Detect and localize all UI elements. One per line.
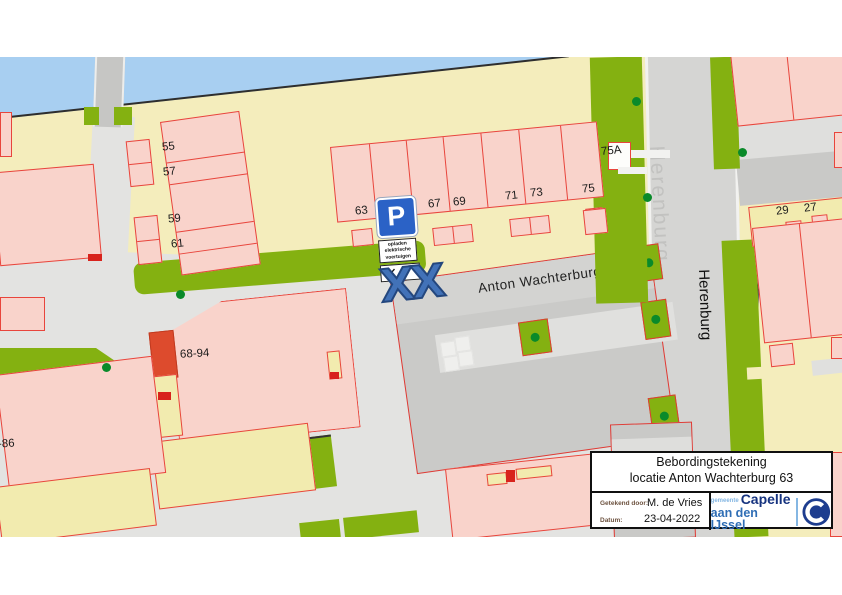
green-bridge-right <box>114 107 132 125</box>
building-row-55-61 <box>160 111 261 276</box>
shed-pair <box>509 215 551 237</box>
drawn-by-value: M. de Vries <box>647 497 702 509</box>
shed <box>831 337 842 359</box>
logo-wordmark: gemeente Capelle aan den IJssel <box>711 492 792 532</box>
shed-75 <box>583 208 608 235</box>
building-west-small <box>0 297 45 331</box>
drawing-title-line1: Bebordingstekening <box>592 455 831 471</box>
green-blob-a <box>299 519 341 537</box>
green-bridge-left <box>84 107 99 125</box>
tree-dot <box>659 411 669 421</box>
divider <box>176 221 253 233</box>
walkway <box>811 357 842 376</box>
parking-stalls <box>440 338 475 382</box>
parking-sign-p-icon: P <box>375 196 418 239</box>
logo-ijssel-text: aan den IJssel <box>711 507 792 532</box>
drawn-by-label: Getekend door: <box>600 500 648 507</box>
divider <box>167 152 244 164</box>
divider <box>560 126 568 200</box>
divider <box>786 57 795 120</box>
date-label: Datum: <box>600 517 622 524</box>
sheds-column-b <box>134 215 163 265</box>
building-sliver-nw <box>0 112 12 157</box>
divider <box>529 218 532 234</box>
building-sliver-e <box>834 132 842 168</box>
herenburg-road-label: Herenburg <box>695 269 715 360</box>
divider <box>480 133 488 207</box>
building-ne-block <box>730 57 842 127</box>
tree-dot <box>530 332 540 342</box>
cross-road-lower <box>736 150 842 206</box>
title-block-meta: Getekend door: M. de Vries Datum: 23-04-… <box>592 493 711 530</box>
divider <box>170 173 247 185</box>
divider <box>129 162 151 165</box>
shed-75a <box>608 142 631 170</box>
path-white <box>618 167 647 174</box>
tree-dot <box>651 314 661 324</box>
logo-divider-bar <box>796 498 798 526</box>
sheds-column-a <box>126 139 155 187</box>
title-block: Bebordingstekening locatie Anton Wachter… <box>590 451 833 529</box>
logo-capelle-text: Capelle <box>741 492 791 506</box>
stall <box>457 350 474 367</box>
divider <box>137 239 159 242</box>
red-marker <box>158 392 171 400</box>
yellow-shed <box>486 472 507 486</box>
red-marker <box>506 470 515 482</box>
shed <box>351 228 374 247</box>
tree-planter <box>518 318 552 356</box>
closure-xx-marker: XX <box>377 254 444 313</box>
drawing-title: Bebordingstekening locatie Anton Wachter… <box>592 453 831 493</box>
date-value: 23-04-2022 <box>644 513 700 525</box>
divider <box>443 137 451 211</box>
building-row-63-75 <box>330 121 604 222</box>
divider <box>180 243 257 255</box>
drawing-title-line2: locatie Anton Wachterburg 63 <box>592 471 831 487</box>
logo-gemeente-text: gemeente <box>711 498 739 506</box>
green-strip-gap <box>747 366 770 379</box>
building-row-29-27 <box>752 218 842 343</box>
tree-planter <box>640 299 671 340</box>
divider <box>518 130 526 204</box>
shed-pair <box>432 224 474 246</box>
divider <box>452 227 455 243</box>
red-marker <box>88 254 102 261</box>
divider <box>799 224 812 337</box>
building-west-block <box>0 164 102 267</box>
path-white <box>631 150 670 158</box>
red-marker <box>330 372 339 379</box>
municipality-logo: gemeente Capelle aan den IJssel <box>711 493 831 530</box>
capelle-logo-icon <box>802 497 831 527</box>
shed <box>769 343 795 367</box>
